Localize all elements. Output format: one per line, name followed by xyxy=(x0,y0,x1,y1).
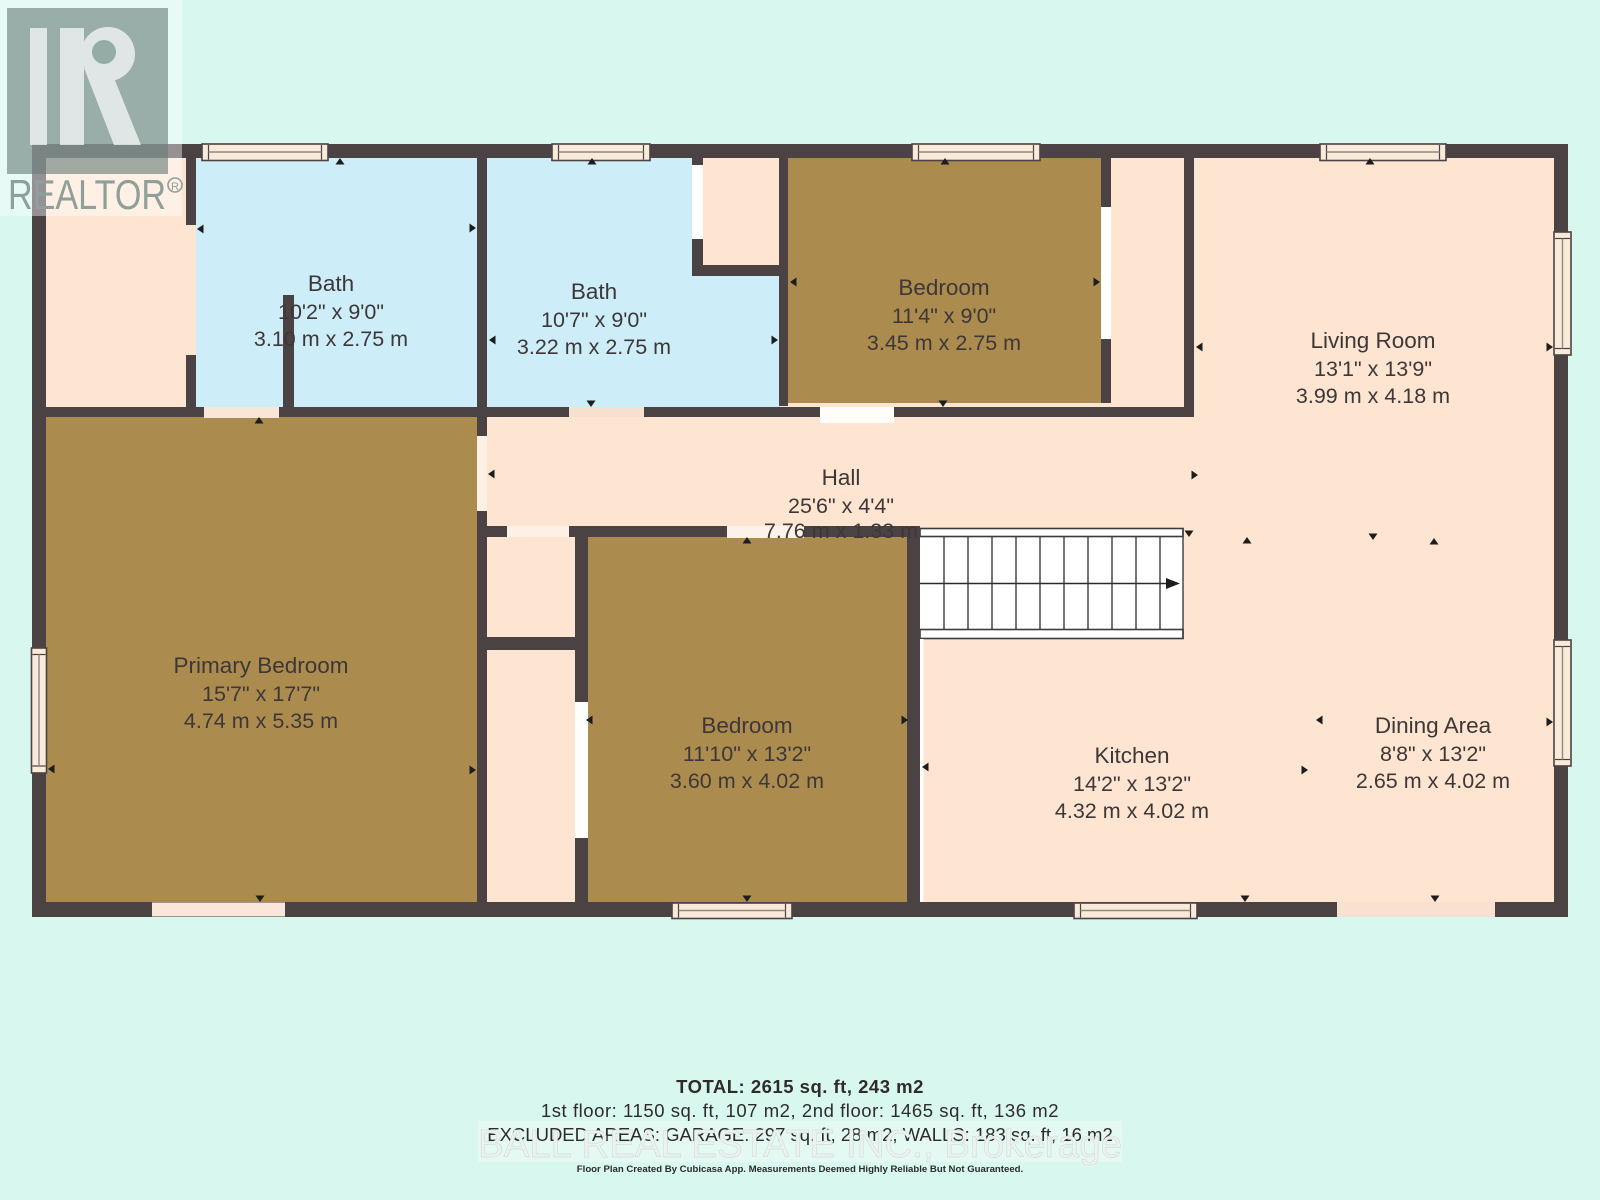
svg-text:3.10 m x 2.75 m: 3.10 m x 2.75 m xyxy=(254,327,408,351)
svg-text:Bath: Bath xyxy=(308,271,354,296)
svg-text:3.22 m x 2.75 m: 3.22 m x 2.75 m xyxy=(517,335,671,359)
svg-text:3.45 m x 2.75 m: 3.45 m x 2.75 m xyxy=(867,331,1021,355)
svg-text:Bath: Bath xyxy=(571,279,617,304)
svg-text:Floor Plan Created By Cubicasa: Floor Plan Created By Cubicasa App. Meas… xyxy=(577,1164,1023,1175)
svg-text:14'2" x 13'2": 14'2" x 13'2" xyxy=(1073,772,1191,796)
svg-text:15'7" x 17'7": 15'7" x 17'7" xyxy=(202,682,320,706)
svg-text:7.76 m x 1.33 m: 7.76 m x 1.33 m xyxy=(764,519,918,543)
svg-text:11'4" x 9'0": 11'4" x 9'0" xyxy=(892,304,996,328)
svg-text:Kitchen: Kitchen xyxy=(1094,743,1169,768)
svg-text:R: R xyxy=(171,181,179,193)
svg-text:Bedroom: Bedroom xyxy=(898,275,989,300)
svg-text:3.60 m x 4.02 m: 3.60 m x 4.02 m xyxy=(670,769,824,793)
svg-text:BALL REAL ESTATE INC., Brokera: BALL REAL ESTATE INC., Brokerage xyxy=(478,1123,1122,1166)
svg-text:Dining Area: Dining Area xyxy=(1375,713,1492,738)
svg-text:4.74 m x 5.35 m: 4.74 m x 5.35 m xyxy=(184,709,338,733)
svg-text:Hall: Hall xyxy=(822,465,861,490)
svg-text:25'6" x 4'4": 25'6" x 4'4" xyxy=(788,494,894,518)
svg-text:TOTAL: 2615 sq. ft, 243 m2: TOTAL: 2615 sq. ft, 243 m2 xyxy=(676,1076,924,1097)
svg-text:Bedroom: Bedroom xyxy=(701,713,792,738)
svg-text:Living Room: Living Room xyxy=(1310,328,1435,353)
svg-text:1st floor: 1150 sq. ft, 107 m2: 1st floor: 1150 sq. ft, 107 m2, 2nd floo… xyxy=(541,1100,1059,1121)
svg-text:11'10" x 13'2": 11'10" x 13'2" xyxy=(683,742,811,766)
svg-text:Primary Bedroom: Primary Bedroom xyxy=(173,653,348,678)
svg-text:4.32 m x 4.02 m: 4.32 m x 4.02 m xyxy=(1055,799,1209,823)
svg-text:10'2" x 9'0": 10'2" x 9'0" xyxy=(278,300,384,324)
svg-text:10'7" x 9'0": 10'7" x 9'0" xyxy=(541,308,647,332)
svg-text:2.65 m x 4.02 m: 2.65 m x 4.02 m xyxy=(1356,769,1510,793)
svg-text:REALTOR: REALTOR xyxy=(8,171,166,218)
svg-text:8'8" x 13'2": 8'8" x 13'2" xyxy=(1380,742,1486,766)
svg-text:3.99 m x 4.18 m: 3.99 m x 4.18 m xyxy=(1296,384,1450,408)
svg-text:13'1" x 13'9": 13'1" x 13'9" xyxy=(1314,357,1432,381)
